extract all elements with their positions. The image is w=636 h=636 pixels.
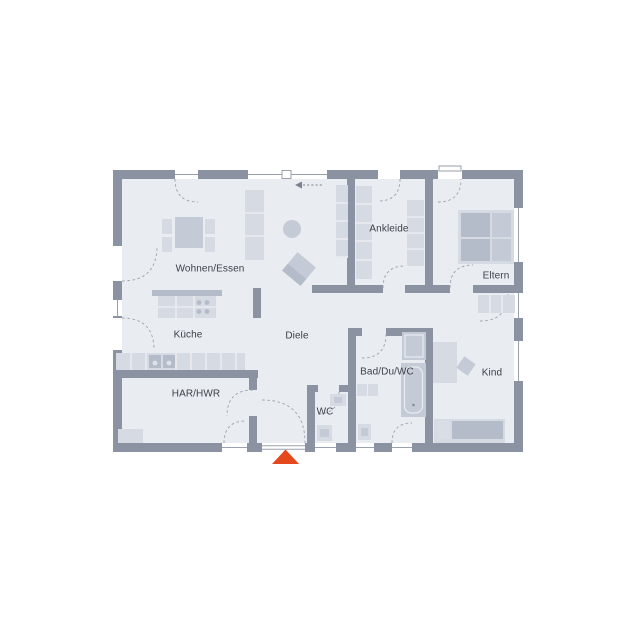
wall-square-marker: [282, 171, 291, 179]
hall-closet: [478, 295, 515, 313]
wardrobe-right: [407, 200, 424, 266]
parents-bed: [458, 210, 514, 264]
floorplan: Wohnen/Essen Küche Diele HAR/HWR WC Bad/…: [0, 0, 636, 636]
room-label-har-hwr: HAR/HWR: [172, 389, 220, 400]
door-panel: [439, 166, 461, 171]
kitchen-counter: [116, 353, 245, 370]
side-table: [283, 220, 301, 238]
sideboard-wall: [336, 185, 348, 258]
utility-cabinet: [118, 429, 143, 443]
floorplan-drawing: [0, 0, 636, 636]
desk: [433, 342, 457, 383]
room-label-wc: WC: [317, 407, 334, 418]
wc-washbasin: [330, 394, 346, 406]
room-label-eltern: Eltern: [483, 271, 510, 282]
room-label-diele: Diele: [285, 331, 308, 342]
room-label-bad-du-wc: Bad/Du/WC: [360, 367, 414, 378]
sideboard-middle: [245, 190, 264, 260]
wc-toilet: [317, 425, 332, 441]
shower: [402, 332, 426, 360]
room-label-kueche: Küche: [174, 330, 203, 341]
bath-toilet: [358, 424, 371, 440]
kitchen-island: [152, 290, 222, 318]
room-label-ankleide: Ankleide: [369, 224, 408, 235]
child-bed: [434, 419, 505, 443]
room-label-wohnen-essen: Wohnen/Essen: [176, 264, 245, 275]
room-label-kind: Kind: [482, 368, 502, 379]
